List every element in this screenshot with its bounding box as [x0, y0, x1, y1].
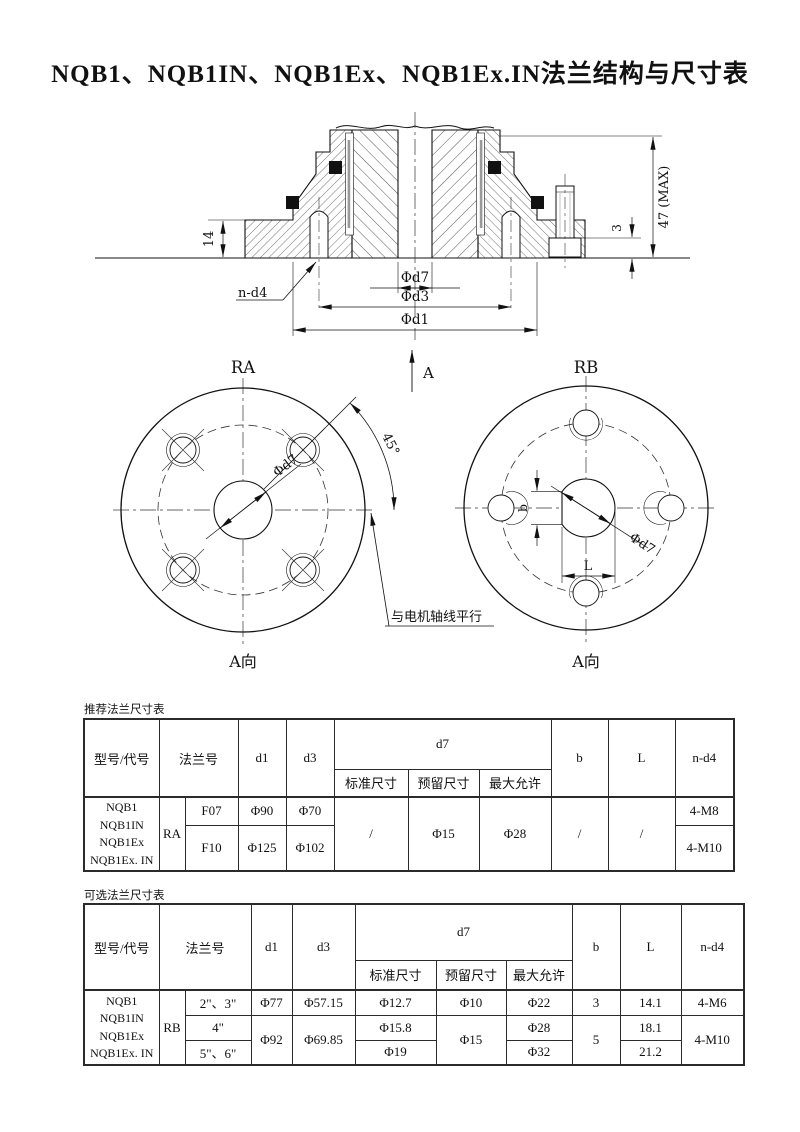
svg-text:Φd1: Φd1: [401, 312, 429, 328]
seal-square: [286, 196, 299, 209]
header-model: 型号/代号: [84, 904, 159, 990]
cell-flange: F07: [185, 797, 238, 825]
cell-b: /: [551, 797, 608, 871]
header-l: L: [620, 904, 681, 990]
table-row: NQB1 NQB1IN NQB1Ex NQB1Ex. IN RB 2"、3" Φ…: [84, 990, 744, 1015]
header-d7-reserved: 预留尺寸: [436, 960, 506, 990]
header-b: b: [551, 719, 608, 797]
svg-text:n-d4: n-d4: [238, 286, 267, 301]
header-d3: d3: [292, 904, 355, 990]
technical-drawing: 14 47 (MAX) 3 n-d4: [0, 0, 800, 690]
ra-direction-label: A向: [228, 652, 257, 671]
cell-group: RB: [159, 990, 185, 1065]
header-d7: d7: [334, 719, 551, 769]
cell-flange: 4": [185, 1015, 251, 1040]
cell-flange: F10: [185, 825, 238, 871]
cell-n-d4: 4-M6: [681, 990, 744, 1015]
cell-d7-max: Φ28: [479, 797, 551, 871]
dimension-14: 14: [202, 220, 245, 257]
cell-d7-max: Φ32: [506, 1040, 572, 1065]
svg-text:Φd7: Φd7: [401, 270, 429, 286]
dimension-3: 3: [581, 217, 641, 279]
view-direction-arrow: A: [412, 350, 434, 392]
optional-flange-table: 型号/代号 法兰号 d1 d3 d7 b L n-d4 标准尺寸 预留尺寸 最大…: [83, 903, 745, 1066]
rb-center-hole: [562, 479, 615, 537]
flange-view-ra: RA: [113, 358, 494, 671]
header-flange: 法兰号: [159, 904, 251, 990]
ra-45deg-dimension: 45°: [264, 397, 402, 510]
cell-d1: Φ125: [238, 825, 286, 871]
drawing-sheet: NQB1、NQB1IN、NQB1Ex、NQB1Ex.IN法兰结构与尺寸表: [0, 0, 800, 1132]
cell-d7-standard: Φ19: [355, 1040, 436, 1065]
rb-label: RB: [574, 358, 599, 377]
svg-text:47 (MAX): 47 (MAX): [657, 166, 672, 229]
cell-l: /: [608, 797, 675, 871]
header-model: 型号/代号: [84, 719, 159, 797]
cell-d3: Φ69.85: [292, 1015, 355, 1065]
cell-d7-standard: Φ15.8: [355, 1015, 436, 1040]
cell-n-d4: 4-M10: [681, 1015, 744, 1065]
header-d7: d7: [355, 904, 572, 960]
cell-d7-max: Φ28: [506, 1015, 572, 1040]
cell-n-d4: 4-M10: [675, 825, 734, 871]
header-d7-max: 最大允许: [506, 960, 572, 990]
cell-d1: Φ92: [251, 1015, 292, 1065]
flange-view-rb: RB b: [455, 358, 718, 671]
cell-l: 18.1: [620, 1015, 681, 1040]
cell-flange: 2"、3": [185, 990, 251, 1015]
svg-text:45°: 45°: [378, 431, 402, 458]
cell-d7-standard: Φ12.7: [355, 990, 436, 1015]
cell-l: 21.2: [620, 1040, 681, 1065]
header-n-d4: n-d4: [681, 904, 744, 990]
header-n-d4: n-d4: [675, 719, 734, 797]
svg-text:Φd7: Φd7: [626, 530, 657, 557]
cell-d1: Φ90: [238, 797, 286, 825]
seal-square: [329, 161, 342, 174]
cell-d1: Φ77: [251, 990, 292, 1015]
cell-d7-standard: /: [334, 797, 408, 871]
cell-d7-reserved: Φ15: [436, 1015, 506, 1065]
header-d7-standard: 标准尺寸: [334, 769, 408, 797]
header-d7-max: 最大允许: [479, 769, 551, 797]
svg-text:L: L: [584, 559, 593, 574]
header-d3: d3: [286, 719, 334, 797]
cell-d3: Φ57.15: [292, 990, 355, 1015]
svg-text:与电机轴线平行: 与电机轴线平行: [391, 610, 482, 625]
recommended-table-caption: 推荐法兰尺寸表: [84, 701, 165, 717]
ra-label: RA: [231, 358, 256, 377]
cell-d7-max: Φ22: [506, 990, 572, 1015]
svg-text:A: A: [422, 364, 434, 382]
svg-text:14: 14: [202, 231, 217, 248]
header-d7-standard: 标准尺寸: [355, 960, 436, 990]
header-d1: d1: [238, 719, 286, 797]
housing-section: [245, 130, 352, 258]
header-b: b: [572, 904, 620, 990]
cell-d7-reserved: Φ15: [408, 797, 479, 871]
cell-b: 3: [572, 990, 620, 1015]
svg-text:b: b: [515, 504, 530, 512]
recommended-flange-table: 型号/代号 法兰号 d1 d3 d7 b L n-d4 标准尺寸 预留尺寸 最大…: [83, 718, 735, 872]
table-row: NQB1 NQB1IN NQB1Ex NQB1Ex. IN RA F07 Φ90…: [84, 797, 734, 825]
optional-table-caption: 可选法兰尺寸表: [84, 887, 165, 903]
cell-d3: Φ102: [286, 825, 334, 871]
cell-models: NQB1 NQB1IN NQB1Ex NQB1Ex. IN: [84, 797, 159, 871]
cell-l: 14.1: [620, 990, 681, 1015]
cell-d7-reserved: Φ10: [436, 990, 506, 1015]
header-l: L: [608, 719, 675, 797]
cell-models: NQB1 NQB1IN NQB1Ex NQB1Ex. IN: [84, 990, 159, 1065]
header-d1: d1: [251, 904, 292, 990]
cell-flange: 5"、6": [185, 1040, 251, 1065]
cell-n-d4: 4-M8: [675, 797, 734, 825]
hub-section: [352, 130, 398, 258]
dimension-d3: Φd3: [319, 289, 511, 307]
cell-group: RA: [159, 797, 185, 871]
svg-text:Φd3: Φd3: [401, 289, 429, 305]
header-flange: 法兰号: [159, 719, 238, 797]
cell-b: 5: [572, 1015, 620, 1065]
svg-text:3: 3: [609, 224, 624, 232]
cross-section-view: 14 47 (MAX) 3 n-d4: [95, 112, 690, 392]
rb-direction-label: A向: [571, 652, 600, 671]
bolt-callout: n-d4: [236, 262, 316, 301]
motor-axis-note: 与电机轴线平行: [371, 513, 494, 626]
header-d7-reserved: 预留尺寸: [408, 769, 479, 797]
cell-d3: Φ70: [286, 797, 334, 825]
